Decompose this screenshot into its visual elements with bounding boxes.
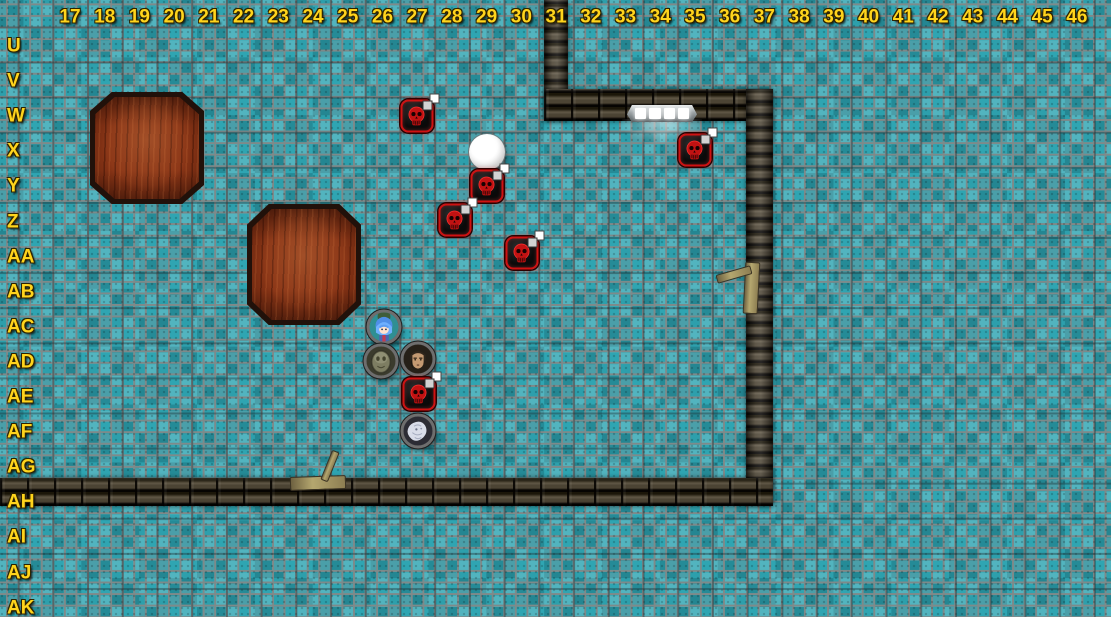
token-state-badge: [701, 128, 718, 145]
map-canvas[interactable]: 1718192021222324252627282930313233343536…: [0, 0, 1111, 617]
badge-square-front: [528, 238, 538, 248]
dark-haired-man-portrait: [404, 345, 433, 374]
skull-token-frame: [439, 204, 472, 237]
skull-token-frame: [401, 100, 434, 133]
skull-token-frame: [506, 237, 539, 270]
pale-creature-portrait: [404, 417, 433, 446]
badge-square-front: [425, 379, 435, 389]
token-state-badge: [425, 372, 442, 389]
portrait-token-ring: [364, 344, 399, 379]
token-state-badge: [461, 198, 478, 215]
badge-square-front: [423, 101, 433, 111]
badge-square-front: [461, 205, 471, 215]
token-state-badge: [423, 94, 440, 111]
tokens-layer: [0, 0, 1111, 617]
skull-token-frame: [679, 134, 712, 167]
portrait-token-ring: [401, 414, 436, 449]
badge-square-front: [493, 171, 503, 181]
portrait-token-ring: [367, 310, 402, 345]
badge-square-front: [701, 135, 711, 145]
skull-token-frame: [403, 378, 436, 411]
blue-haired-girl-portrait: [370, 313, 399, 342]
ghostly-figure-portrait: [367, 347, 396, 376]
token-state-badge: [528, 231, 545, 248]
token-state-badge: [493, 164, 510, 181]
